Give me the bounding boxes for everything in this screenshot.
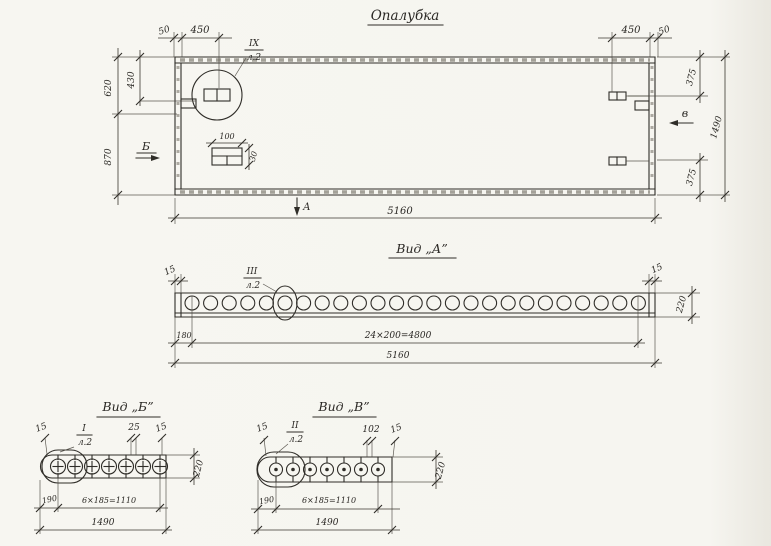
dim-375-top: 375 bbox=[685, 68, 699, 87]
view-b-dim-25: 25 bbox=[127, 423, 140, 433]
view-a: Вид „А” III л.2 15 15 220 bbox=[163, 241, 700, 368]
view-a-dim-220: 220 bbox=[675, 295, 689, 315]
formwork-plan: Опалубка bbox=[104, 8, 730, 224]
view-a-dim-180: 180 bbox=[176, 331, 191, 340]
dim-870: 870 bbox=[104, 148, 114, 165]
dim-450-right: 450 bbox=[620, 25, 641, 36]
view-b-dim-holes: 6×185=1110 bbox=[82, 496, 136, 505]
callout-iii-sheet: л.2 bbox=[246, 281, 261, 291]
blueprint-canvas: Опалубка bbox=[0, 0, 771, 546]
view-v-dim-15-right: 15 bbox=[389, 422, 403, 435]
svg-text:А: А bbox=[302, 202, 311, 213]
dim-620: 620 bbox=[104, 79, 114, 96]
right-bracket bbox=[635, 101, 649, 110]
view-b-dim-total: 1490 bbox=[92, 518, 115, 528]
section-marker-b: Б bbox=[136, 140, 160, 161]
callout-ii-sheet: л.2 bbox=[289, 435, 304, 445]
callout-ix-sheet: л.2 bbox=[247, 53, 262, 63]
callout-ix-num: IX bbox=[248, 39, 260, 49]
dim-50-right: 50 bbox=[657, 24, 671, 37]
view-a-dim-holes: 24×200=4800 bbox=[364, 331, 432, 341]
right-tie-plate-bottom bbox=[609, 157, 649, 165]
view-v-dim-holes: 6×185=1110 bbox=[302, 496, 356, 505]
view-b-dim-15-right: 15 bbox=[154, 421, 168, 434]
view-b-title: Вид „Б” bbox=[101, 399, 153, 414]
view-v-dim-total: 1490 bbox=[316, 518, 339, 528]
callout-iii-num: III bbox=[246, 267, 258, 277]
dim-50-left: 50 bbox=[157, 24, 171, 37]
callout-i-sheet: л.2 bbox=[78, 438, 93, 448]
view-a-holes bbox=[185, 296, 645, 310]
svg-text:Б: Б bbox=[141, 140, 150, 153]
view-v-dim-15-left: 15 bbox=[255, 421, 269, 434]
dim-375-bottom: 375 bbox=[685, 168, 699, 187]
view-v-dim-102: 102 bbox=[362, 425, 379, 435]
view-a-dim-15-left: 15 bbox=[163, 264, 178, 278]
blueprint-sheet: Опалубка bbox=[0, 0, 771, 546]
plate-dim-100: 100 bbox=[219, 132, 234, 141]
view-b: Вид „Б” I л.2 15 25 15 220 190 6×185=111… bbox=[34, 399, 206, 534]
formwork-title: Опалубка bbox=[371, 8, 440, 24]
section-marker-v: в bbox=[669, 107, 693, 126]
svg-text:в: в bbox=[682, 107, 688, 120]
view-a-title: Вид „А” bbox=[395, 241, 447, 256]
plate-dim-30: 30 bbox=[248, 150, 259, 162]
detail-circle-ix: IX л.2 bbox=[192, 39, 263, 120]
dim-1490: 1490 bbox=[709, 115, 725, 140]
view-b-dim-15-left: 15 bbox=[34, 421, 48, 434]
view-v: Вид „В” II л.2 15 102 15 220 190 6×185=1… bbox=[251, 399, 448, 534]
plate-detail: 100 30 bbox=[206, 132, 259, 170]
dim-430: 430 bbox=[127, 71, 137, 89]
view-a-dim-15-right: 15 bbox=[650, 262, 665, 276]
section-marker-a: А bbox=[294, 198, 311, 216]
view-b-holes bbox=[51, 455, 168, 478]
dim-5160: 5160 bbox=[387, 206, 413, 217]
view-v-holes bbox=[270, 457, 385, 482]
view-a-dim-total: 5160 bbox=[387, 351, 410, 361]
callout-i-num: I bbox=[81, 424, 86, 434]
view-v-dim-190: 190 bbox=[258, 495, 275, 507]
dim-450-left: 450 bbox=[189, 25, 210, 36]
callout-ii-num: II bbox=[290, 421, 299, 431]
view-v-title: Вид „В” bbox=[317, 399, 369, 414]
